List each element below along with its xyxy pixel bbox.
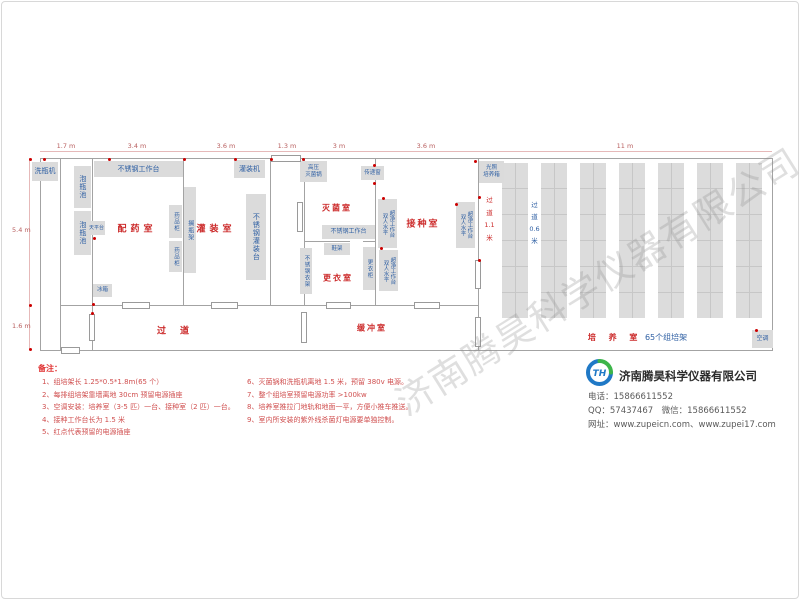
balance-table: 天平台	[88, 221, 105, 235]
room-label-corridor: 过道	[157, 324, 203, 337]
door-symbol	[89, 314, 95, 341]
power-outlet-dot	[108, 158, 111, 161]
door-symbol	[301, 312, 307, 343]
air-conditioner: 空调	[752, 330, 773, 348]
dimension-label: 3.6 m	[417, 142, 436, 150]
notes-section: 备注： 1、组培架长 1.25*0.5*1.8m(65 个）2、每排组培架靠墙离…	[38, 363, 458, 377]
notes-title: 备注：	[38, 363, 458, 374]
clean-bench-1: 双人水平 超净工作台	[378, 199, 397, 248]
aisle-0-6m: 过 道 0.6 米	[526, 199, 543, 247]
company-phone: 电话：15866611552	[588, 390, 673, 402]
power-outlet-dot	[302, 158, 305, 161]
shoe-rack: 鞋架	[324, 243, 350, 255]
ss-clothes-rack: 不锈钢衣架	[300, 248, 312, 294]
room-label-changing-room: 更衣室	[323, 273, 353, 284]
power-outlet-dot	[234, 158, 237, 161]
wall	[270, 158, 271, 305]
room-label-buffer-room: 缓冲室	[357, 323, 387, 334]
company-name: 济南腾昊科学仪器有限公司	[619, 368, 757, 384]
clean-bench-3: 双人水平 超净工作台	[456, 202, 475, 248]
culture-room-label: 培 养 室 65个组培架	[575, 332, 700, 343]
room-label-inoculation-room: 接种室	[406, 217, 439, 230]
wall	[304, 241, 350, 242]
top-dimension-line	[40, 151, 772, 152]
power-outlet-dot	[474, 160, 477, 163]
power-outlet-dot	[478, 259, 481, 262]
room-label-filling-room: 灌装室	[196, 222, 235, 235]
room-label-medicine-prep-room: 配药室	[117, 222, 156, 235]
note-item: 5、红点代表预留的电源插座	[42, 426, 235, 439]
company-logo-icon: TH	[586, 359, 613, 386]
autoclave: 高压 灭菌锅	[300, 161, 327, 182]
power-outlet-dot	[183, 158, 186, 161]
medicine-cabinet-1: 药品柜	[169, 205, 182, 238]
power-outlet-dot	[380, 247, 383, 250]
wall	[60, 158, 61, 351]
culture-room-rack-count: 65个组培架	[645, 333, 687, 342]
note-item: 9、室内所安装的紫外线杀菌灯电源要单独控制。	[247, 414, 412, 427]
dimension-label: 3.4 m	[128, 142, 147, 150]
power-outlet-dot	[373, 182, 376, 185]
note-item: 6、灭菌锅和洗瓶机离地 1.5 米，预留 380v 电源。	[247, 376, 412, 389]
ss-workbench-mid: 不锈钢工作台	[322, 225, 375, 239]
filling-machine: 灌装机	[234, 160, 265, 178]
note-item: 8、培养室推拉门地轨和地面一平，方便小推车推送。	[247, 401, 412, 414]
notes-column-2: 6、灭菌锅和洗瓶机离地 1.5 米，预留 380v 电源。7、整个组培室预留电源…	[247, 376, 412, 426]
room-label-sterilization-room: 灭菌室	[322, 203, 352, 214]
locker: 更衣柜	[363, 247, 375, 290]
wall	[40, 350, 772, 351]
note-item: 7、整个组培室预留电源功率 >100kw	[247, 389, 412, 402]
power-outlet-dot	[29, 158, 32, 161]
notes-column-1: 1、组培架长 1.25*0.5*1.8m(65 个）2、每排组培架靠墙离地 30…	[42, 376, 235, 439]
power-outlet-dot	[29, 304, 32, 307]
power-outlet-dot	[755, 329, 758, 332]
wall	[363, 241, 375, 242]
wall	[375, 158, 376, 305]
door-symbol	[297, 202, 303, 232]
ss-filling-table: 不锈钢灌装台	[246, 194, 266, 280]
power-outlet-dot	[93, 237, 96, 240]
pass-through-window: 传递窗	[361, 166, 384, 180]
dimension-label: 1.6 m	[12, 322, 31, 330]
medicine-cabinet-2: 药品柜	[169, 241, 182, 272]
power-outlet-dot	[91, 312, 94, 315]
door-symbol	[271, 155, 301, 162]
power-outlet-dot	[373, 164, 376, 167]
bottle-shelf-rack: 搁瓶架	[184, 187, 196, 273]
dimension-label: 3.6 m	[217, 142, 236, 150]
company-website: 网址：www.zupeicn.com、www.zupei17.com	[588, 418, 776, 430]
ss-workbench-top: 不锈钢工作台	[94, 161, 183, 177]
dimension-label: 1.7 m	[57, 142, 76, 150]
bottle-washing-machine: 洗瓶机	[32, 162, 58, 181]
company-qq-wechat: QQ：57437467 微信：15866611552	[588, 404, 747, 416]
fridge: 冰箱	[93, 284, 112, 297]
floor-plan-page: 1.7 m3.4 m3.6 m1.3 m3 m3.6 m11 m5.4 m1.6…	[0, 0, 800, 600]
power-outlet-dot	[92, 303, 95, 306]
note-item: 3、空调安装：培养室（3-5 匹）一台、接种室（2 匹）一台。	[42, 401, 235, 414]
floor-plan: 1.7 m3.4 m3.6 m1.3 m3 m3.6 m11 m5.4 m1.6…	[0, 0, 800, 600]
power-outlet-dot	[382, 197, 385, 200]
light-incubator: 光照 培养箱	[479, 161, 504, 183]
power-outlet-dot	[43, 158, 46, 161]
dimension-label: 5.4 m	[12, 226, 31, 234]
power-outlet-dot	[29, 348, 32, 351]
wall	[40, 158, 772, 159]
aisle-1-1m: 过 道 1.1 米	[481, 194, 498, 244]
door-symbol	[211, 302, 238, 309]
power-outlet-dot	[455, 203, 458, 206]
door-symbol	[61, 347, 80, 354]
power-outlet-dot	[270, 158, 273, 161]
company-logo-text: TH	[593, 369, 607, 379]
note-item: 2、每排组培架靠墙离地 30cm 预留电源插座	[42, 389, 235, 402]
note-item: 1、组培架长 1.25*0.5*1.8m(65 个）	[42, 376, 235, 389]
soak-pool-1: 泡瓶池	[74, 166, 91, 208]
door-symbol	[414, 302, 440, 309]
dimension-label: 1.3 m	[278, 142, 297, 150]
clean-bench-2: 双人水平 超净工作台	[379, 250, 398, 291]
dimension-label: 3 m	[333, 142, 346, 150]
wall	[40, 158, 41, 351]
door-symbol	[122, 302, 150, 309]
door-symbol	[475, 260, 481, 289]
dimension-label: 11 m	[617, 142, 634, 150]
culture-room-name: 培 养 室	[588, 333, 643, 342]
note-item: 4、接种工作台长为 1.5 米	[42, 414, 235, 427]
door-symbol	[326, 302, 351, 309]
